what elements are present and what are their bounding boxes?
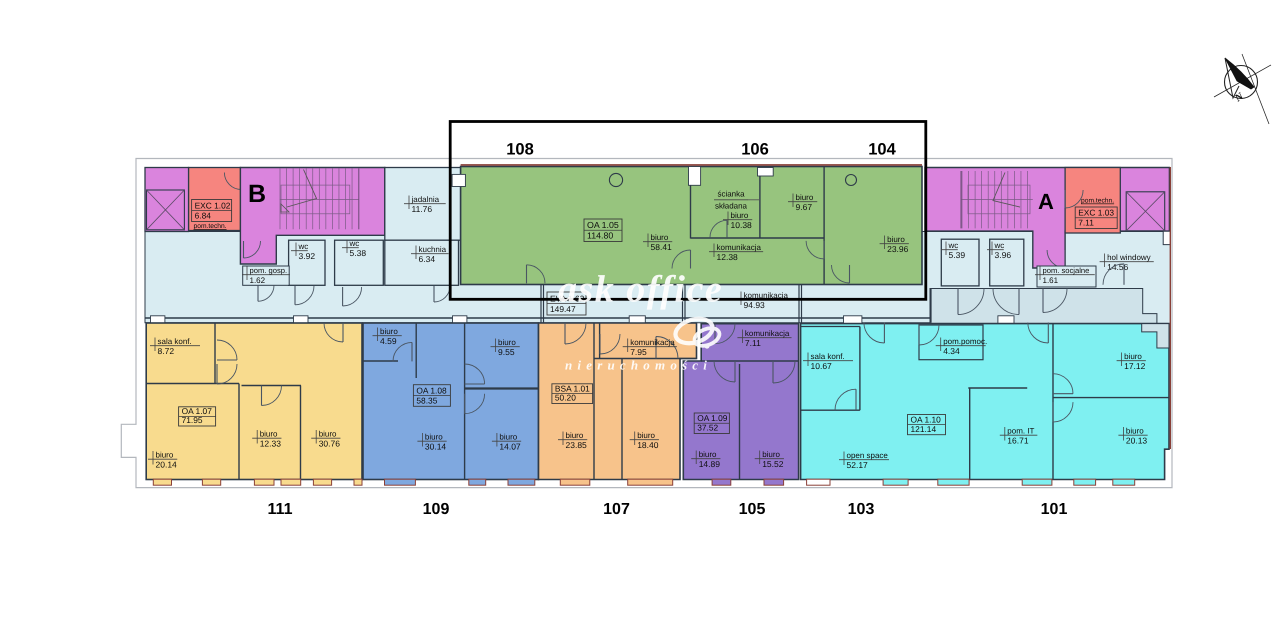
- svg-text:109: 109: [423, 501, 450, 518]
- svg-text:121.14: 121.14: [911, 424, 937, 434]
- svg-text:pom.techn.: pom.techn.: [194, 223, 227, 230]
- svg-text:6.84: 6.84: [195, 211, 212, 221]
- svg-text:EXC 1.03: EXC 1.03: [1078, 208, 1114, 218]
- svg-text:8.72: 8.72: [158, 346, 175, 356]
- svg-text:OA 1.05: OA 1.05: [587, 220, 619, 230]
- svg-text:23.85: 23.85: [566, 440, 588, 450]
- svg-text:111: 111: [268, 501, 293, 518]
- svg-text:1.61: 1.61: [1043, 276, 1059, 285]
- svg-text:50.20: 50.20: [555, 393, 576, 403]
- svg-text:biuro: biuro: [796, 193, 814, 202]
- svg-text:15.52: 15.52: [762, 459, 784, 469]
- svg-text:1.62: 1.62: [250, 276, 266, 285]
- svg-text:6.34: 6.34: [419, 254, 436, 264]
- svg-text:18.40: 18.40: [637, 440, 659, 450]
- svg-text:5.38: 5.38: [350, 248, 367, 258]
- svg-text:pom.pomoc.: pom.pomoc.: [943, 337, 987, 346]
- svg-text:A: A: [1038, 189, 1054, 214]
- svg-text:pom.techn.: pom.techn.: [1081, 198, 1114, 205]
- svg-text:wc: wc: [948, 241, 959, 250]
- svg-text:108: 108: [506, 141, 534, 159]
- svg-text:104: 104: [868, 141, 896, 159]
- svg-text:4.34: 4.34: [943, 346, 960, 356]
- svg-text:12.38: 12.38: [717, 252, 739, 262]
- svg-text:106: 106: [741, 141, 769, 159]
- svg-text:52.17: 52.17: [847, 460, 869, 470]
- svg-text:16.71: 16.71: [1007, 435, 1029, 445]
- svg-text:4.59: 4.59: [380, 336, 397, 346]
- svg-text:biuro: biuro: [731, 211, 749, 220]
- svg-text:kuchnia: kuchnia: [419, 245, 447, 254]
- svg-text:biuro: biuro: [762, 450, 780, 459]
- svg-text:9.67: 9.67: [796, 202, 813, 212]
- svg-text:7.95: 7.95: [630, 347, 647, 357]
- svg-text:58.41: 58.41: [651, 242, 673, 252]
- svg-text:30.14: 30.14: [425, 441, 447, 451]
- svg-text:101: 101: [1041, 501, 1068, 518]
- svg-text:14.07: 14.07: [499, 441, 521, 451]
- svg-text:biuro: biuro: [499, 433, 517, 442]
- svg-text:OA 1.08: OA 1.08: [416, 385, 447, 395]
- svg-text:hol windowy: hol windowy: [1107, 253, 1151, 262]
- svg-text:komunikacja: komunikacja: [745, 329, 790, 338]
- svg-text:nieruchomości: nieruchomości: [565, 358, 712, 373]
- svg-text:7.11: 7.11: [745, 338, 761, 348]
- svg-text:94.93: 94.93: [744, 300, 766, 310]
- svg-text:23.96: 23.96: [887, 244, 909, 254]
- svg-text:103: 103: [848, 501, 875, 518]
- svg-text:N: N: [1232, 91, 1246, 105]
- svg-text:open space: open space: [847, 451, 889, 460]
- svg-text:14.56: 14.56: [1107, 262, 1129, 272]
- svg-text:9.55: 9.55: [498, 347, 515, 357]
- svg-text:komunikacja: komunikacja: [717, 243, 762, 252]
- svg-text:71.95: 71.95: [182, 415, 203, 425]
- svg-text:EXC 1.02: EXC 1.02: [195, 200, 231, 210]
- svg-text:biuro: biuro: [651, 233, 669, 242]
- svg-text:wc: wc: [349, 239, 360, 248]
- svg-text:biuro: biuro: [699, 450, 717, 459]
- svg-text:biuro: biuro: [1124, 352, 1142, 361]
- svg-text:3.92: 3.92: [299, 251, 316, 261]
- svg-text:pom. socjalne: pom. socjalne: [1043, 266, 1090, 275]
- svg-text:114.80: 114.80: [587, 231, 613, 241]
- svg-text:biuro: biuro: [156, 451, 174, 460]
- svg-text:OA 1.09: OA 1.09: [697, 413, 728, 423]
- svg-text:wc: wc: [298, 242, 309, 251]
- svg-text:7.11: 7.11: [1078, 218, 1094, 228]
- svg-text:biuro: biuro: [425, 433, 443, 442]
- svg-text:sala konf.: sala konf.: [811, 352, 845, 361]
- svg-text:jadalnia: jadalnia: [411, 195, 440, 204]
- svg-text:składana: składana: [715, 202, 748, 211]
- svg-text:10.38: 10.38: [731, 220, 753, 230]
- svg-text:komunikacja: komunikacja: [630, 338, 675, 347]
- svg-text:107: 107: [603, 501, 630, 518]
- svg-text:20.13: 20.13: [1126, 435, 1148, 445]
- svg-text:14.89: 14.89: [699, 459, 721, 469]
- svg-text:pom. IT: pom. IT: [1007, 427, 1034, 436]
- svg-text:17.12: 17.12: [1124, 361, 1146, 371]
- svg-text:3.96: 3.96: [995, 250, 1012, 260]
- svg-text:sala konf.: sala konf.: [158, 337, 192, 346]
- svg-text:biuro: biuro: [319, 430, 337, 439]
- svg-text:biuro: biuro: [260, 430, 278, 439]
- svg-text:pom. gosp.: pom. gosp.: [250, 266, 288, 275]
- svg-text:58.35: 58.35: [416, 396, 437, 406]
- svg-text:biuro: biuro: [637, 431, 655, 440]
- svg-text:biuro: biuro: [887, 235, 905, 244]
- svg-text:30.76: 30.76: [319, 438, 341, 448]
- svg-text:5.39: 5.39: [949, 250, 966, 260]
- svg-text:ścianka: ścianka: [717, 190, 745, 199]
- svg-text:20.14: 20.14: [156, 459, 178, 469]
- svg-text:biuro: biuro: [498, 338, 516, 347]
- svg-text:B: B: [248, 180, 266, 208]
- svg-text:biuro: biuro: [566, 431, 584, 440]
- svg-text:37.52: 37.52: [697, 423, 718, 433]
- svg-text:105: 105: [739, 501, 766, 518]
- svg-text:11.76: 11.76: [412, 204, 433, 214]
- svg-text:wc: wc: [994, 241, 1005, 250]
- svg-text:OA 1.10: OA 1.10: [911, 414, 942, 424]
- svg-text:10.67: 10.67: [811, 361, 833, 371]
- svg-text:ask office: ask office: [558, 269, 723, 311]
- svg-text:biuro: biuro: [380, 327, 398, 336]
- svg-text:biuro: biuro: [1126, 427, 1144, 436]
- svg-text:12.33: 12.33: [260, 438, 282, 448]
